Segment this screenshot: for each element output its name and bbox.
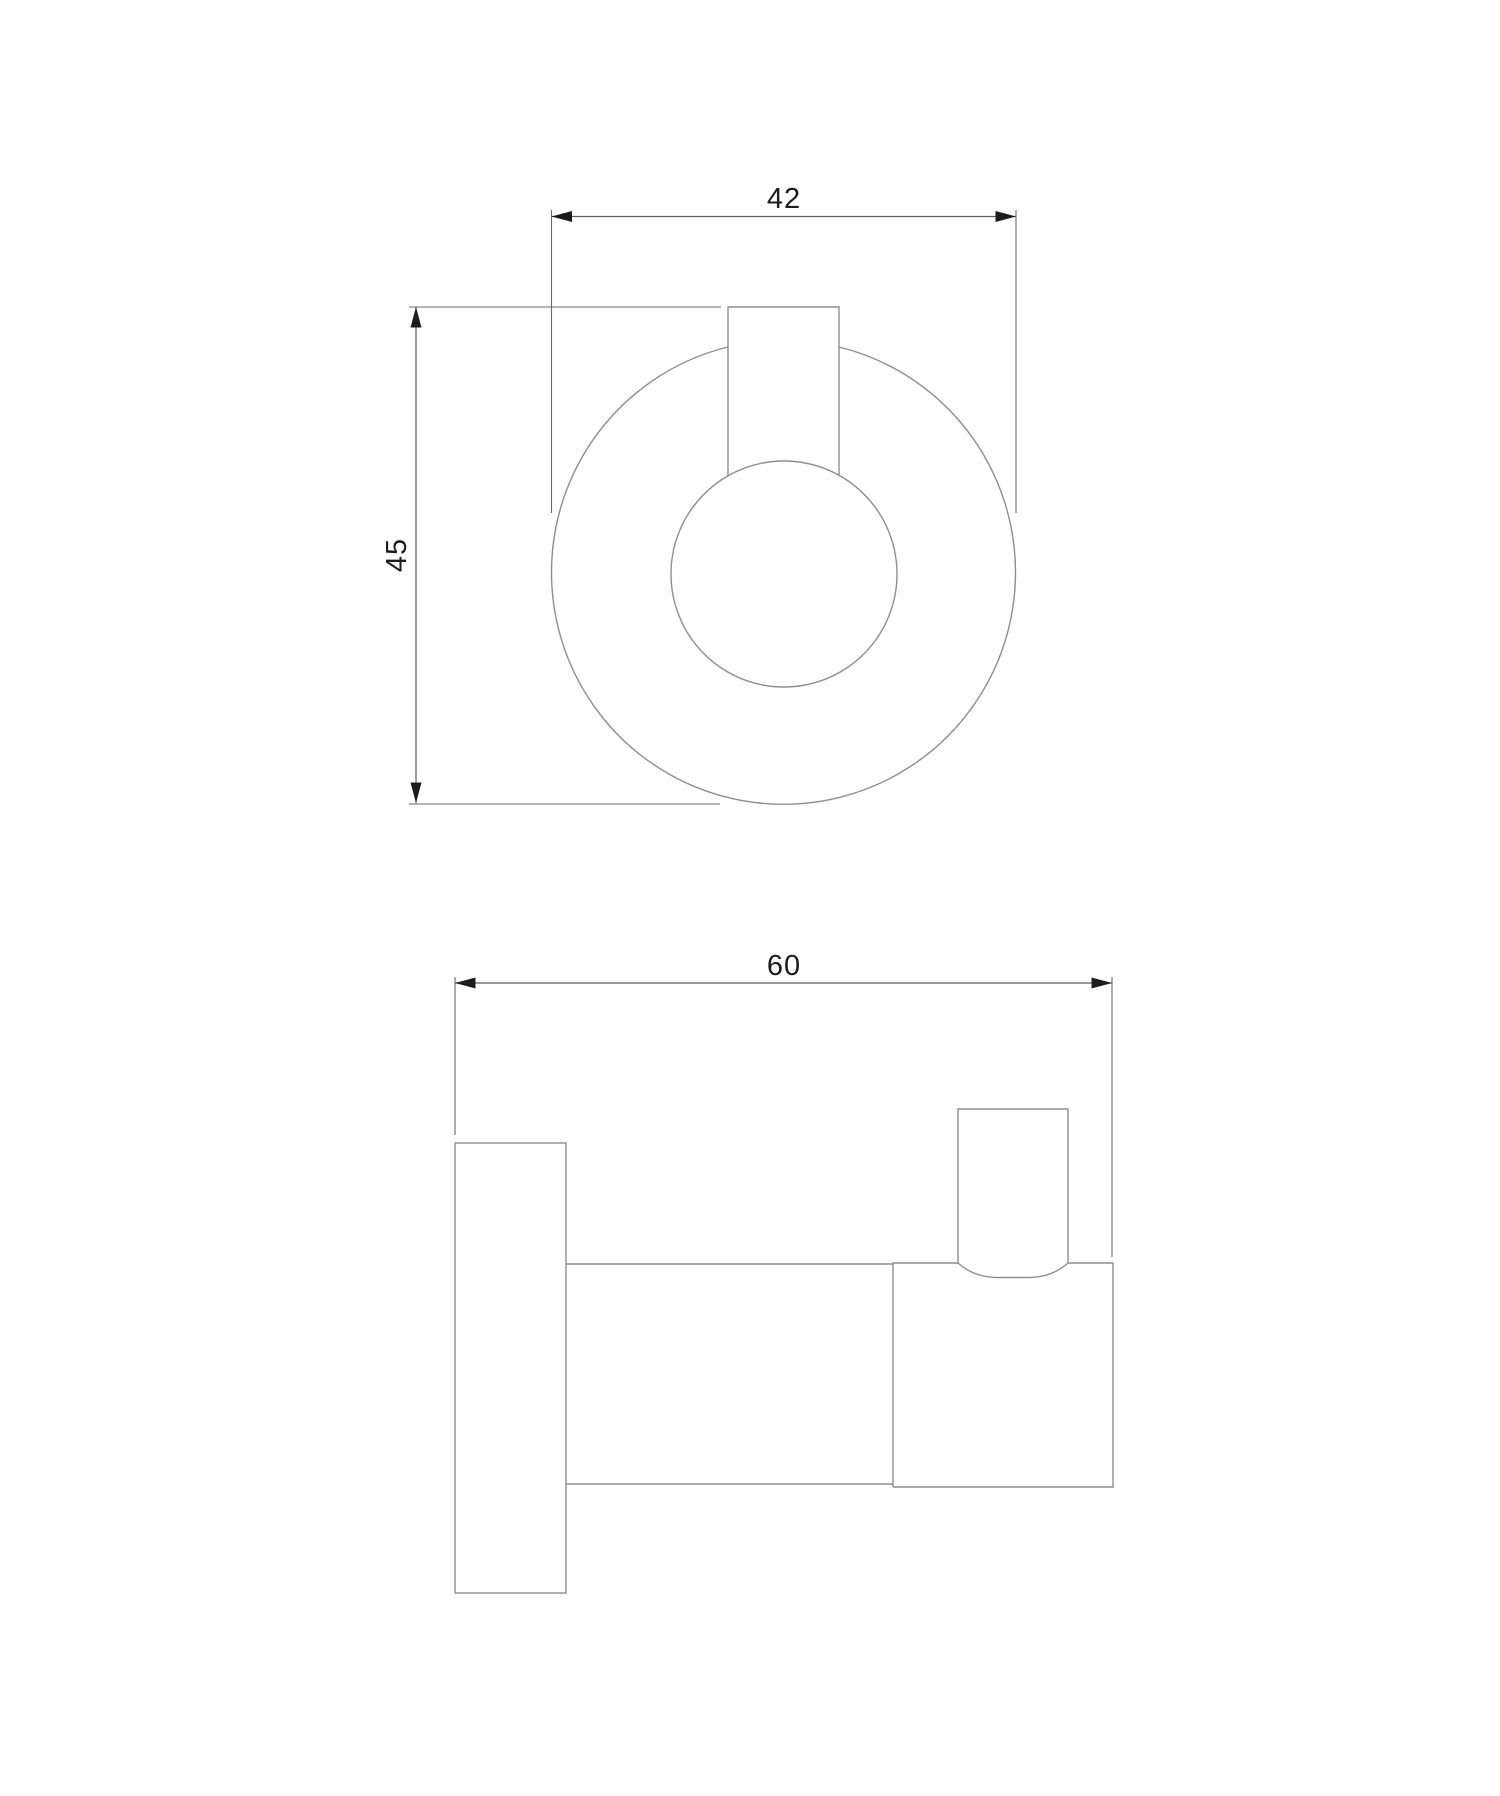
- side-hook-peg: [958, 1109, 1068, 1278]
- side-depth-dimension: 60: [455, 950, 1112, 1257]
- side-wall-plate: [455, 1143, 566, 1593]
- front-width-arrow-right: [996, 211, 1017, 222]
- front-height-arrow-top: [411, 307, 422, 328]
- front-width-dimension: 42: [552, 183, 1017, 513]
- side-depth-arrow-right: [1092, 978, 1113, 989]
- front-flange-circle: [552, 347, 1016, 804]
- hook-technical-drawing: 42 45: [0, 0, 1500, 1796]
- front-body-circle: [671, 461, 897, 687]
- front-height-arrow-bottom: [411, 783, 422, 804]
- technical-drawing-sheet: 42 45: [0, 0, 1500, 1796]
- front-width-arrow-left: [552, 211, 573, 222]
- side-body: [566, 1264, 893, 1484]
- side-depth-dimension-label: 60: [767, 950, 801, 982]
- side-depth-arrow-left: [455, 978, 476, 989]
- front-peg-tab: [728, 307, 839, 476]
- side-end-cap: [893, 1263, 1113, 1487]
- front-view: 42 45: [381, 183, 1016, 804]
- side-view: 60: [455, 950, 1113, 1593]
- front-width-dimension-label: 42: [767, 183, 801, 215]
- front-height-dimension-label: 45: [381, 538, 413, 572]
